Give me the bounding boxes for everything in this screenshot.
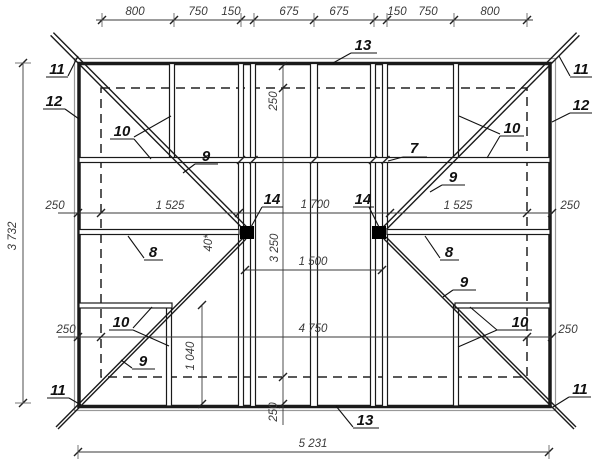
beam-lower-left (79, 303, 172, 308)
pos-label-11-top-right: 11 (573, 61, 589, 78)
pos-label-10-bottom-right: 10 (512, 314, 529, 331)
pos-label-9-top-right: 9 (449, 169, 458, 186)
pos-label-12-left: 12 (46, 93, 63, 110)
stud-top-right (454, 64, 459, 161)
dim-height-3732: 3 732 (7, 221, 19, 250)
dim-mid-250-left: 250 (44, 200, 65, 212)
pos-label-8-left: 8 (149, 244, 158, 261)
dim-top-800-right: 800 (480, 6, 500, 18)
dim-low-250-left: 250 (55, 324, 76, 336)
dim-center-250-bottom: 250 (268, 402, 280, 423)
stud-bottom-left (167, 305, 172, 406)
dim-overall-width: 5 231 (74, 438, 553, 459)
pos-label-14-left: 14 (264, 191, 281, 208)
stud-top-left (170, 64, 175, 161)
dim-top-150-right: 150 (387, 6, 407, 18)
beam-right (387, 230, 550, 235)
dim-overall-height: 3 732 (7, 59, 31, 407)
dim-center-3250: 3 250 (269, 233, 281, 262)
pos-label-8-right: 8 (445, 244, 454, 261)
dim-top-750-left: 750 (188, 6, 208, 18)
dim-chain-top: 800 750 150 675 675 150 750 800 (96, 6, 533, 27)
beam-left (79, 230, 239, 235)
ridge-beam (311, 64, 318, 407)
dim-1500: 1 500 (299, 256, 328, 268)
dim-mid-1525-right: 1 525 (444, 200, 473, 212)
pos-label-9-top-left: 9 (202, 148, 211, 165)
dim-top-675-left: 675 (279, 6, 299, 18)
pos-label-11-bottom-right: 11 (572, 381, 588, 398)
dim-width-5231: 5 231 (299, 438, 328, 450)
dim-low-4750: 4 750 (299, 323, 328, 335)
framing-plan-drawing: 800 750 150 675 675 150 750 800 3 732 5 … (0, 0, 600, 469)
pos-label-13-top: 13 (355, 37, 372, 54)
pos-label-10-top-left: 10 (114, 123, 131, 140)
dim-mid-250-right: 250 (559, 200, 580, 212)
dim-top-800-left: 800 (125, 6, 145, 18)
pos-label-13-bottom: 13 (357, 412, 374, 429)
pos-label-7: 7 (410, 140, 419, 157)
pos-label-10-bottom-left: 10 (113, 314, 130, 331)
dim-low-250-right: 250 (557, 324, 578, 336)
dim-center-250-top: 250 (268, 91, 280, 112)
pos-label-11-top-left: 11 (49, 61, 65, 78)
pos-label-12-right: 12 (573, 97, 590, 114)
dim-40-star: 40* (203, 234, 215, 252)
pos-label-11-bottom-left: 11 (50, 382, 66, 399)
stud-bottom-right (454, 305, 459, 406)
dim-mid-1525-left: 1 525 (156, 200, 185, 212)
pos-label-14-right: 14 (355, 191, 372, 208)
dim-1040: 1 040 (185, 341, 197, 370)
node-14-right (372, 226, 386, 239)
pos-label-9-bottom-left: 9 (139, 353, 148, 370)
dim-mid-1700: 1 700 (301, 199, 330, 211)
dim-top-675-right: 675 (329, 6, 349, 18)
pos-label-9-bottom-right: 9 (460, 274, 469, 291)
beam-lower-right (455, 303, 550, 308)
node-14-left (240, 226, 254, 239)
pos-label-10-top-right: 10 (504, 120, 521, 137)
dim-top-150-left: 150 (221, 6, 241, 18)
dim-top-750-right: 750 (418, 6, 438, 18)
